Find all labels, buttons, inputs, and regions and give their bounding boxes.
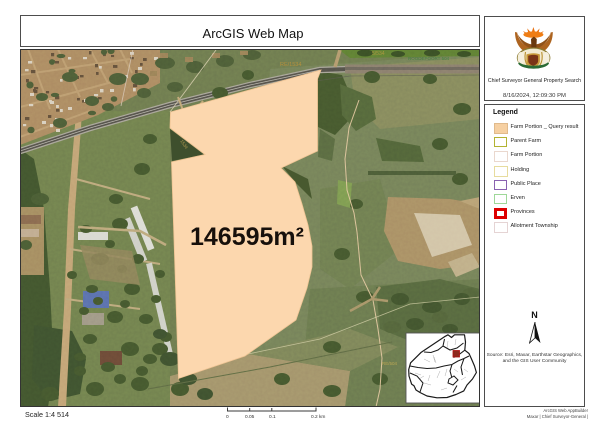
svg-text:0.05: 0.05 [245, 414, 255, 420]
svg-text:0.2 km: 0.2 km [311, 414, 325, 420]
svg-text:146595m²: 146595m² [190, 223, 304, 251]
svg-text:0.1: 0.1 [269, 414, 276, 420]
svg-text:0: 0 [226, 414, 229, 420]
